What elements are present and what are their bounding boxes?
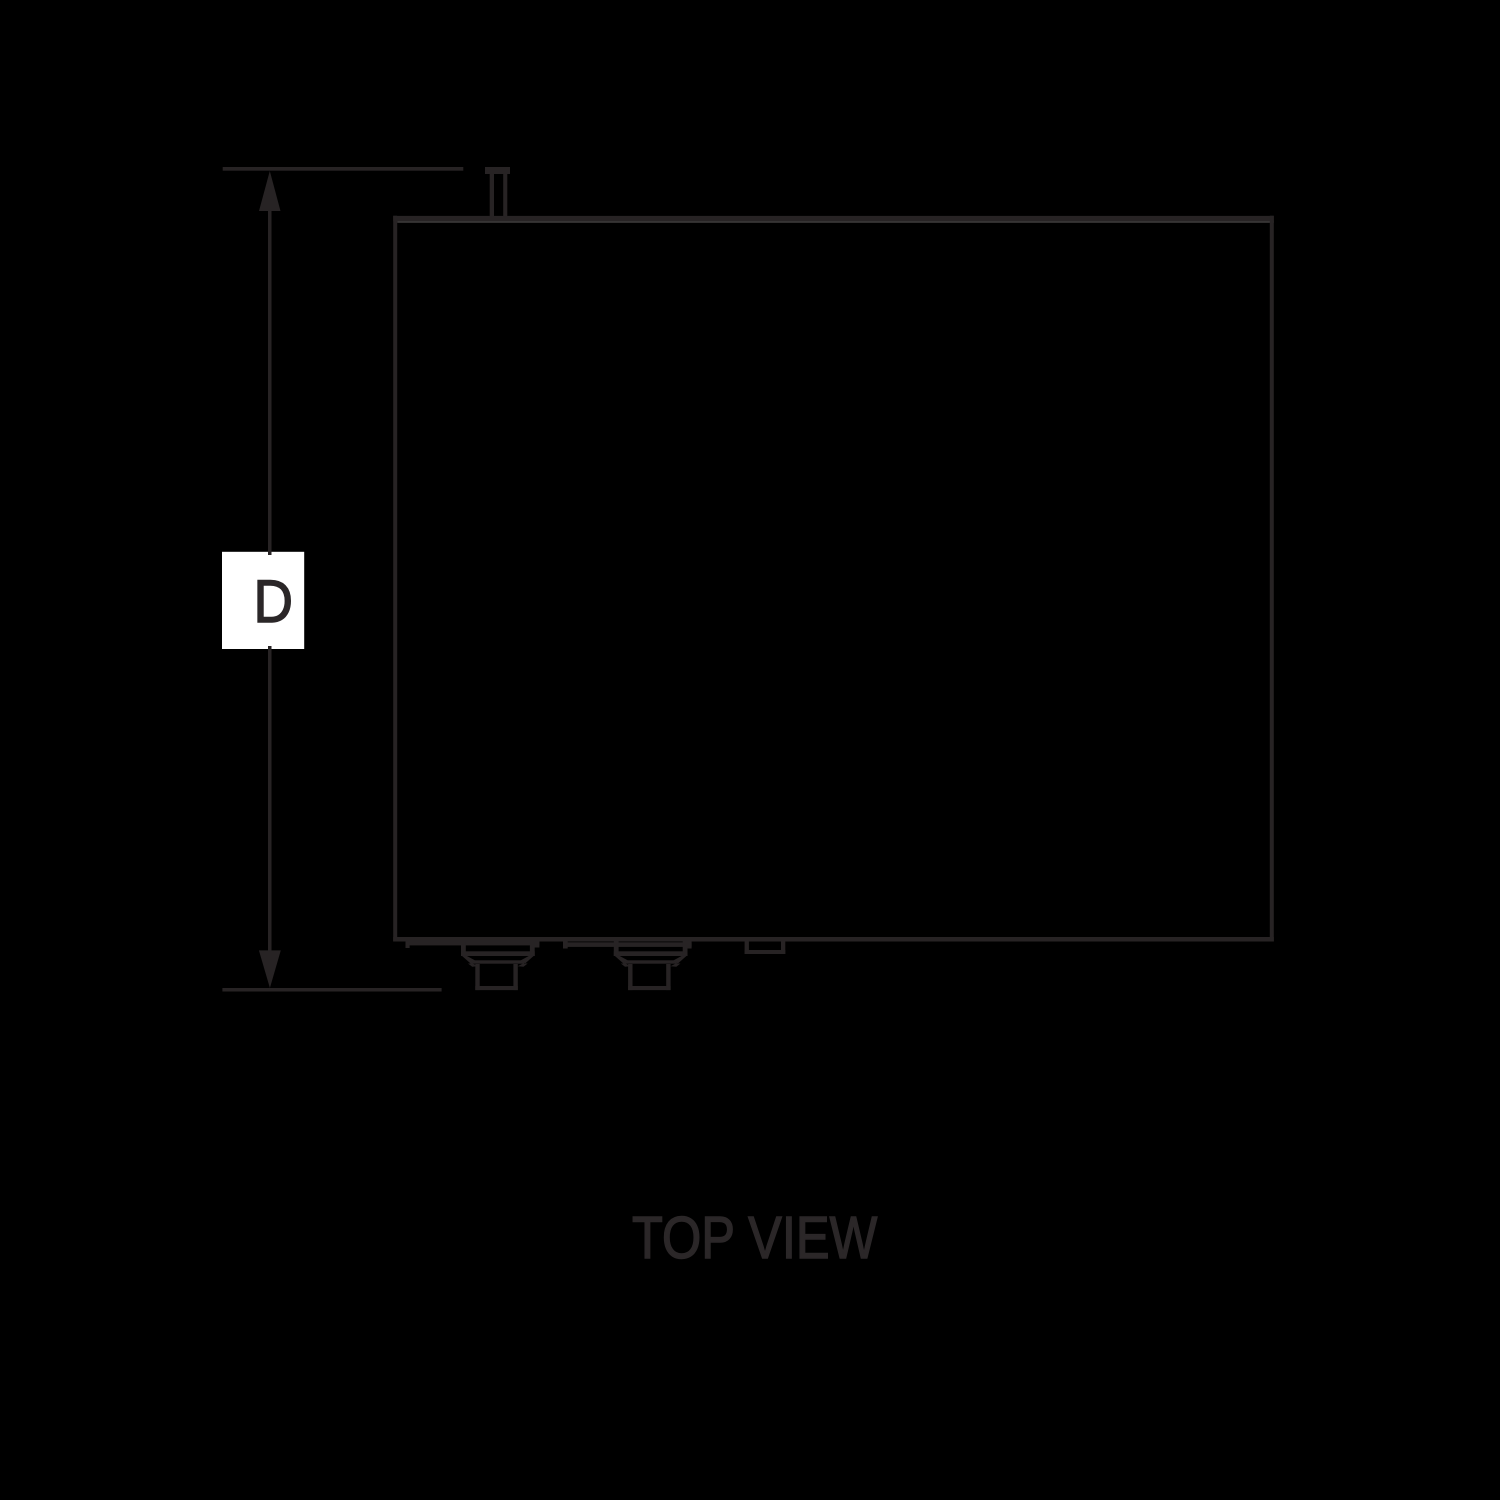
- svg-text:TOP VIEW: TOP VIEW: [632, 1205, 878, 1271]
- svg-text:D: D: [254, 567, 294, 635]
